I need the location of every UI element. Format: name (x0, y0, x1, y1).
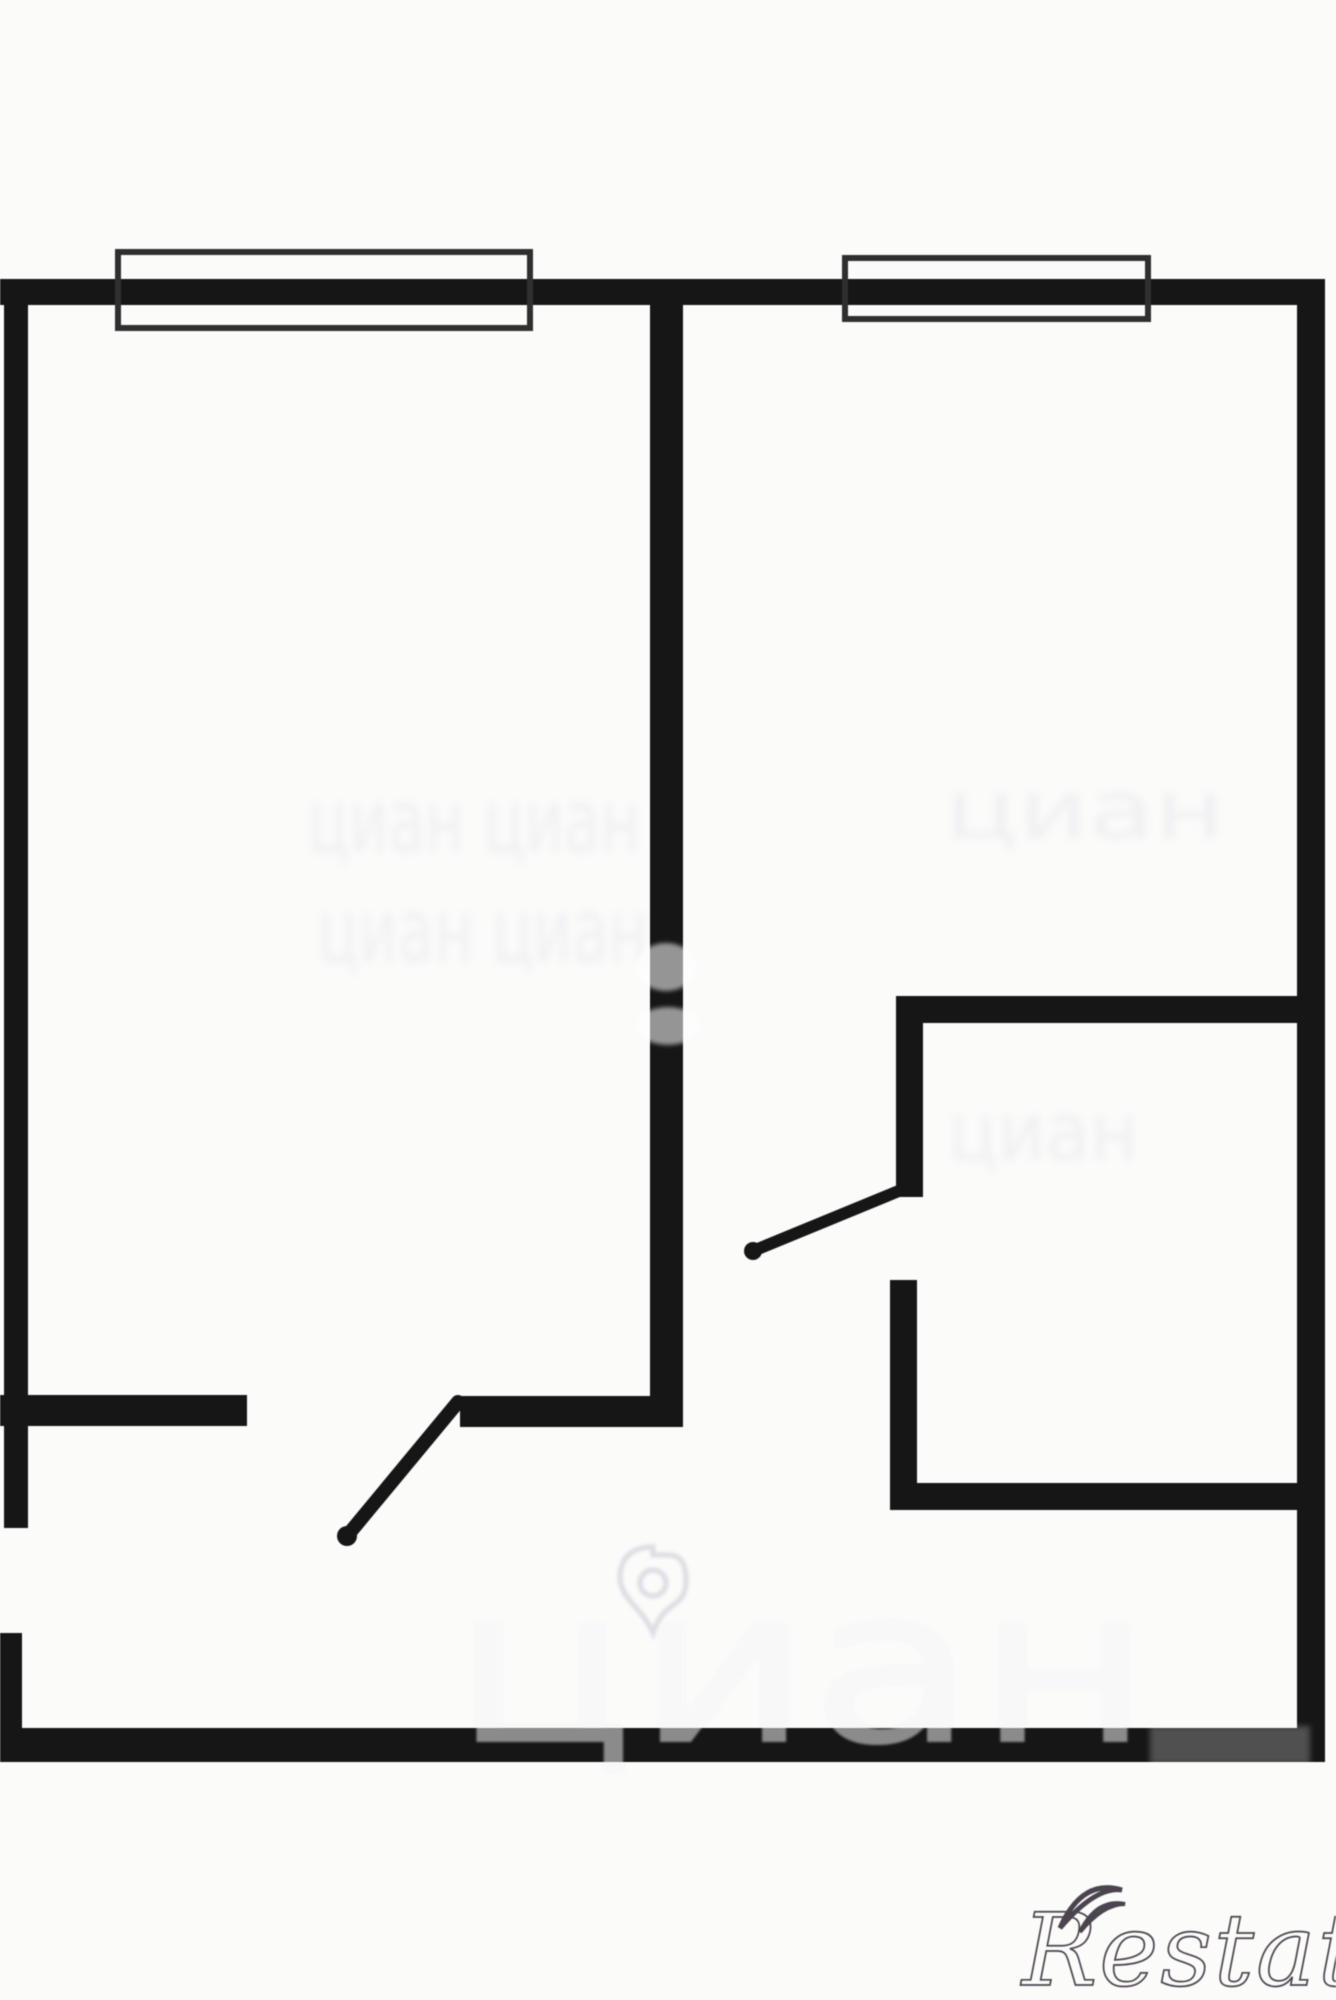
outer-left-wall-lower (0, 1633, 22, 1733)
restate-logo-text: Restate (1020, 1892, 1336, 2000)
hall-wall-right-segment (460, 1396, 683, 1427)
watermark-fragment-on-divider-1 (636, 943, 696, 991)
bathroom-left-wall-lower (890, 1280, 917, 1510)
outer-left-wall-upper (4, 279, 28, 1528)
watermark-patch-bottom-wall (1150, 1726, 1310, 1764)
watermark-bottom-big-overlay: циан (452, 1542, 1152, 1793)
watermark-right-room-lower: циан (948, 1086, 1138, 1179)
doors-layer (337, 1188, 906, 1546)
floorplan-svg: циан цианциан цианцианцианциан циан Rest… (0, 0, 1336, 2000)
bathroom-left-wall-upper (896, 996, 923, 1197)
restate-logo: Restate (1020, 1888, 1336, 2000)
watermark-center-row-2: циан циан (318, 880, 648, 983)
door-living-room-swing (347, 1402, 458, 1536)
floorplan-image: циан цианциан цианцианцианциан циан Rest… (0, 0, 1336, 2000)
bathroom-top-wall (896, 996, 1297, 1023)
bathroom-bottom-wall (890, 1483, 1297, 1510)
watermark-center-row-1: циан циан (308, 770, 640, 873)
door-living-room-swing-hinge (337, 1526, 357, 1546)
hall-wall-left-stub (0, 1395, 247, 1426)
door-bathroom-swing-hinge (744, 1242, 762, 1260)
door-bathroom-swing (753, 1188, 906, 1251)
watermark-over-layer: циан (452, 943, 1310, 1793)
outer-right-wall (1297, 279, 1325, 1755)
watermark-right-room-upper: циан (945, 764, 1225, 857)
watermark-fragment-on-divider-2 (636, 1007, 700, 1045)
room-divider-wall (650, 290, 683, 1427)
